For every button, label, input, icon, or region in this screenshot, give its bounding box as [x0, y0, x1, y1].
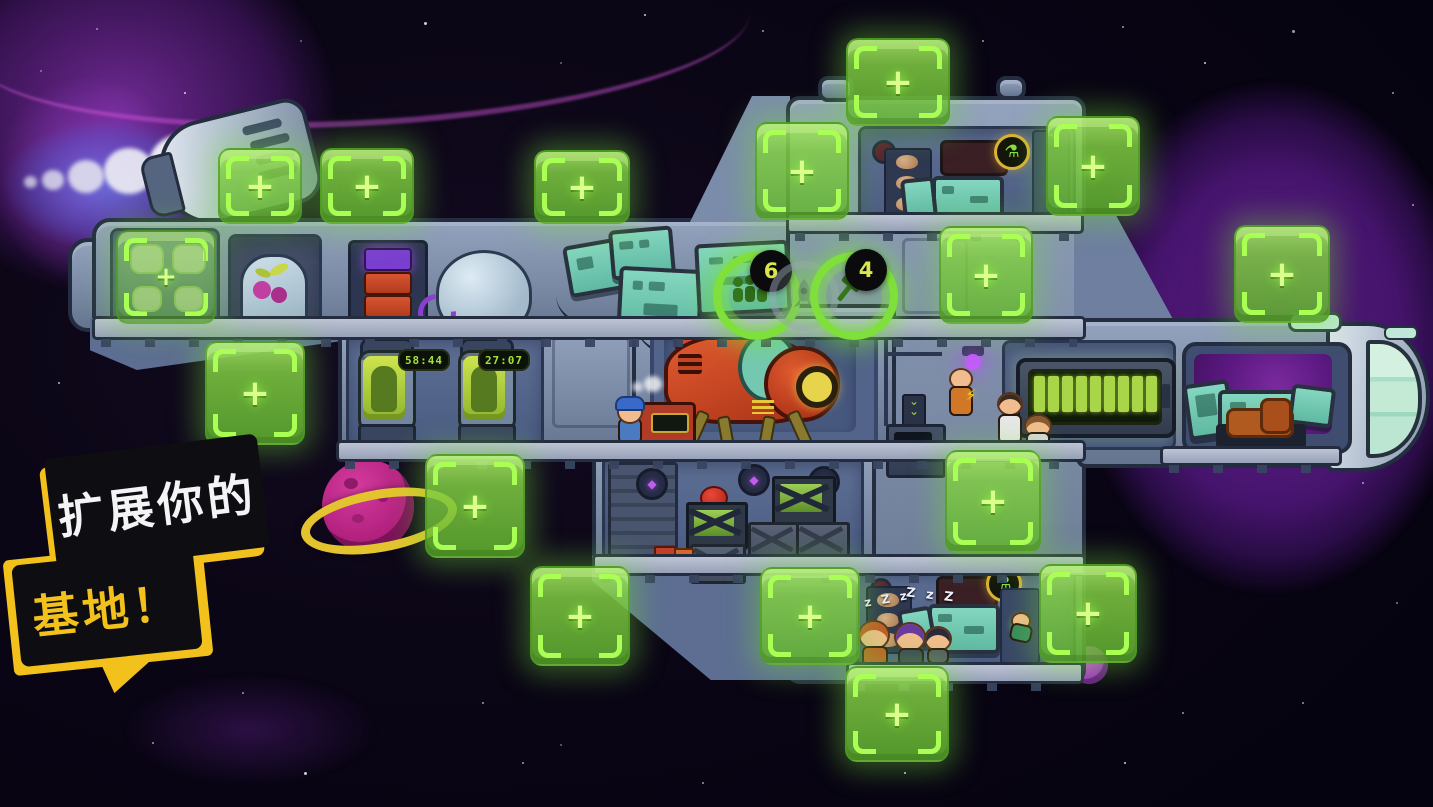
expand-slot-button[interactable]: +: [1039, 564, 1137, 663]
gem-icon: ◆: [741, 467, 767, 493]
plus-icon: +: [848, 40, 948, 124]
plus-icon: +: [207, 343, 303, 443]
flask-icon: ⚗: [997, 137, 1027, 167]
drill-smoke: [644, 376, 662, 392]
crew-body: [1008, 622, 1033, 644]
battery-segment: [1034, 376, 1045, 412]
plus-icon: +: [1041, 566, 1135, 661]
build-count-badge: 4: [845, 249, 887, 291]
plus-icon: +: [1236, 227, 1328, 321]
plant-blob: [253, 281, 271, 299]
screen-pixel: [709, 257, 723, 265]
drill-headlight: [796, 366, 838, 408]
game-scene: ⚗ ⌃ ⌄: [0, 0, 1433, 807]
build-count: 4: [859, 258, 874, 282]
engine-smoke-puff: [68, 160, 104, 193]
canister-red: [364, 272, 412, 295]
battery-segment: [1076, 376, 1087, 412]
crew-member-worker[interactable]: [614, 396, 644, 444]
expand-slot-button[interactable]: +: [846, 38, 950, 126]
battery-segment: [1090, 376, 1101, 412]
flask-badge[interactable]: ⚗: [994, 134, 1030, 170]
plus-icon: +: [941, 228, 1031, 322]
engine-smoke-puff: [24, 176, 37, 188]
screen-pixel: [970, 196, 988, 203]
cage-crate[interactable]: [772, 476, 836, 526]
battery-segment: [1104, 376, 1115, 412]
gem-icon: ◆: [639, 471, 665, 497]
recycle-sign: ⌄ ⌄: [902, 394, 926, 426]
expand-slot-button[interactable]: +: [534, 150, 630, 224]
plus-icon: +: [762, 569, 858, 663]
expand-slot-button[interactable]: +: [320, 148, 414, 224]
chevron-down-icon: ⌄: [904, 404, 924, 418]
expand-slot-button[interactable]: +: [945, 450, 1041, 553]
screen-pixel: [576, 256, 594, 271]
expand-slot-button[interactable]: +: [755, 122, 849, 220]
banner-line2-box: 基地！: [11, 547, 203, 667]
expand-slot-button[interactable]: +: [939, 226, 1033, 324]
drill-vents: [752, 400, 774, 414]
plus-icon: +: [1048, 118, 1138, 214]
expand-slot-button[interactable]: +: [218, 148, 302, 224]
battery-terminal: [1162, 384, 1170, 408]
ghost-room-preview[interactable]: +: [116, 230, 216, 324]
roof-vent: [996, 76, 1026, 100]
banner-line2: 基地！: [29, 566, 185, 647]
engine-smoke-puff: [42, 170, 64, 190]
incubator-timer-1: 58:44: [398, 349, 450, 371]
screen-pixel: [1195, 393, 1218, 418]
drill-grille: [678, 354, 702, 374]
lightning-icon: ⚡: [962, 386, 980, 404]
pod-figure: [471, 366, 497, 412]
pod-figure: [371, 366, 397, 412]
banner-line1: 扩展你的: [54, 458, 261, 548]
plant-leaf: [268, 261, 290, 278]
gem-lamp: ◆: [636, 468, 668, 500]
cage-crate[interactable]: [686, 502, 748, 550]
plus-icon: +: [220, 150, 300, 222]
battery-segments: [1034, 376, 1164, 414]
cockpit-screen-right[interactable]: [1288, 383, 1337, 428]
crew-member-sleeping[interactable]: [856, 614, 890, 664]
plus-icon: +: [757, 124, 847, 218]
hull-diagonal-right: [1074, 216, 1180, 332]
crew-member-sleeping[interactable]: [892, 618, 926, 664]
screen-pixel: [639, 239, 650, 248]
plus-icon: +: [118, 232, 214, 322]
drill-smoke: [632, 382, 643, 392]
expand-slot-button[interactable]: +: [530, 566, 630, 666]
plant-leaf: [254, 267, 272, 280]
crew-member-sleeping[interactable]: [922, 624, 952, 664]
deck-floor: [92, 316, 1086, 340]
nose-top-slit: [1384, 326, 1418, 340]
screen-pixel: [942, 186, 954, 194]
elevator-shaft-bottom[interactable]: [1000, 588, 1040, 664]
battery-segment: [1062, 376, 1073, 412]
plus-icon: +: [322, 150, 412, 222]
plus-icon: +: [532, 568, 628, 664]
battery-segment: [1132, 376, 1143, 412]
battery-segment: [1118, 376, 1129, 412]
expand-slot-button[interactable]: +: [425, 454, 525, 558]
deck-floor: [1160, 446, 1342, 466]
expand-slot-button[interactable]: +: [1234, 225, 1330, 323]
plus-icon: +: [536, 152, 628, 222]
screen-pixel: [619, 241, 634, 250]
canister-purple: [364, 248, 412, 271]
screen-pixel: [938, 614, 952, 622]
expand-slot-button[interactable]: +: [845, 666, 949, 762]
workbench-screen: [651, 413, 689, 433]
expand-slot-button[interactable]: +: [760, 567, 860, 665]
expand-slot-button[interactable]: +: [1046, 116, 1140, 216]
battery-segment: [1146, 376, 1157, 412]
hull-pipe: [886, 352, 942, 356]
crew-head: [997, 392, 1023, 416]
plus-icon: +: [427, 456, 523, 556]
plus-icon: +: [947, 452, 1039, 551]
battery-segment: [1048, 376, 1059, 412]
incubator-timer-2: 27:07: [478, 349, 530, 371]
canister-red: [364, 295, 412, 318]
promo-banner: 扩展你的 基地！: [0, 430, 300, 710]
pilot-chair-back: [1260, 398, 1292, 434]
crew-member-kid[interactable]: [994, 390, 1022, 444]
plant-blob: [271, 287, 287, 303]
crew-cap: [615, 396, 645, 411]
plus-icon: +: [847, 668, 947, 760]
screen-pixel: [964, 626, 984, 634]
brain-specimen: [896, 155, 918, 169]
